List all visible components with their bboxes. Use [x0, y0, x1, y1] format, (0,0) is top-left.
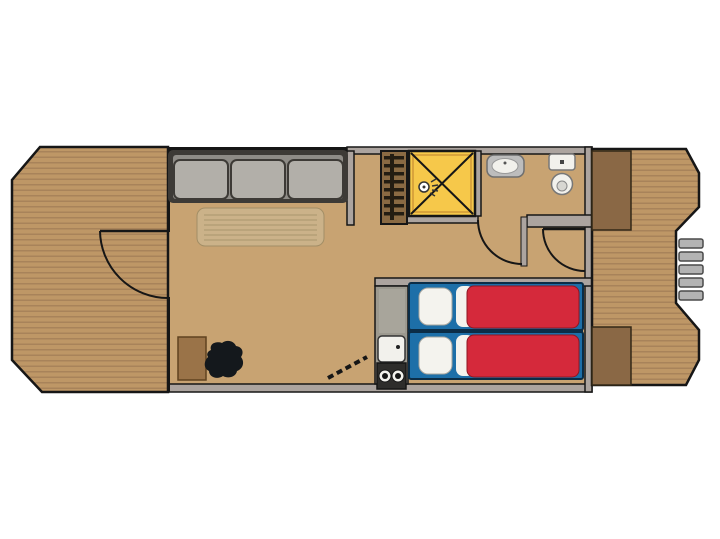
sofa-cushion-3: [288, 160, 343, 199]
kitchen-sink: [378, 336, 405, 362]
shower-group: [409, 151, 475, 216]
toilet-button: [560, 160, 564, 164]
left-wall-lower: [167, 297, 170, 392]
kitchenette-group: [375, 286, 408, 389]
kitchen-sink-drain: [396, 345, 400, 349]
sofa-wardrobe-divider-wall: [347, 151, 354, 225]
sofa-cushion-2: [231, 160, 285, 199]
black-stove-blob: [205, 341, 243, 378]
boarding-steps: [679, 239, 703, 300]
step-hatch-dashed-line: [328, 357, 367, 378]
living-room-group: [168, 150, 367, 380]
bed-upper-pillow: [419, 288, 452, 325]
toilet-bowl-inner: [557, 181, 567, 191]
bed-upper-duvet: [467, 286, 579, 328]
boarding-step: [679, 278, 703, 287]
wardrobe-group: [381, 151, 407, 224]
wardrobe-rod: [390, 154, 394, 220]
kitchen-counter-top-panel: [379, 289, 405, 333]
bathroom-bottom-right-wall: [527, 215, 592, 227]
boarding-step: [679, 265, 703, 274]
storage-box-top: [592, 151, 631, 230]
boarding-step: [679, 239, 703, 248]
sofa-cushion-1: [174, 160, 228, 199]
boarding-step: [679, 252, 703, 261]
stern-deck-group: [592, 149, 703, 385]
floor-plan-linework: [0, 0, 720, 539]
floor-plan-canvas: [0, 0, 720, 539]
bedroom-group: [408, 283, 583, 379]
boarding-step: [679, 291, 703, 300]
bed-lower-pillow: [419, 337, 452, 374]
bow-deck-outline: [12, 147, 168, 392]
sink-drain: [504, 162, 507, 165]
bathroom-door-swing-arc: [478, 220, 522, 264]
bathroom-group: [487, 154, 575, 195]
sink-basin: [492, 159, 518, 174]
stern-door-swing-arc: [543, 229, 585, 271]
bow-door-swing-arc: [100, 231, 168, 298]
storage-box-bottom: [592, 327, 631, 385]
bathroom-door-leaf: [521, 217, 527, 266]
cabinet: [178, 337, 206, 380]
bed-lower-duvet: [467, 335, 579, 377]
bow-deck-group: [12, 147, 168, 392]
